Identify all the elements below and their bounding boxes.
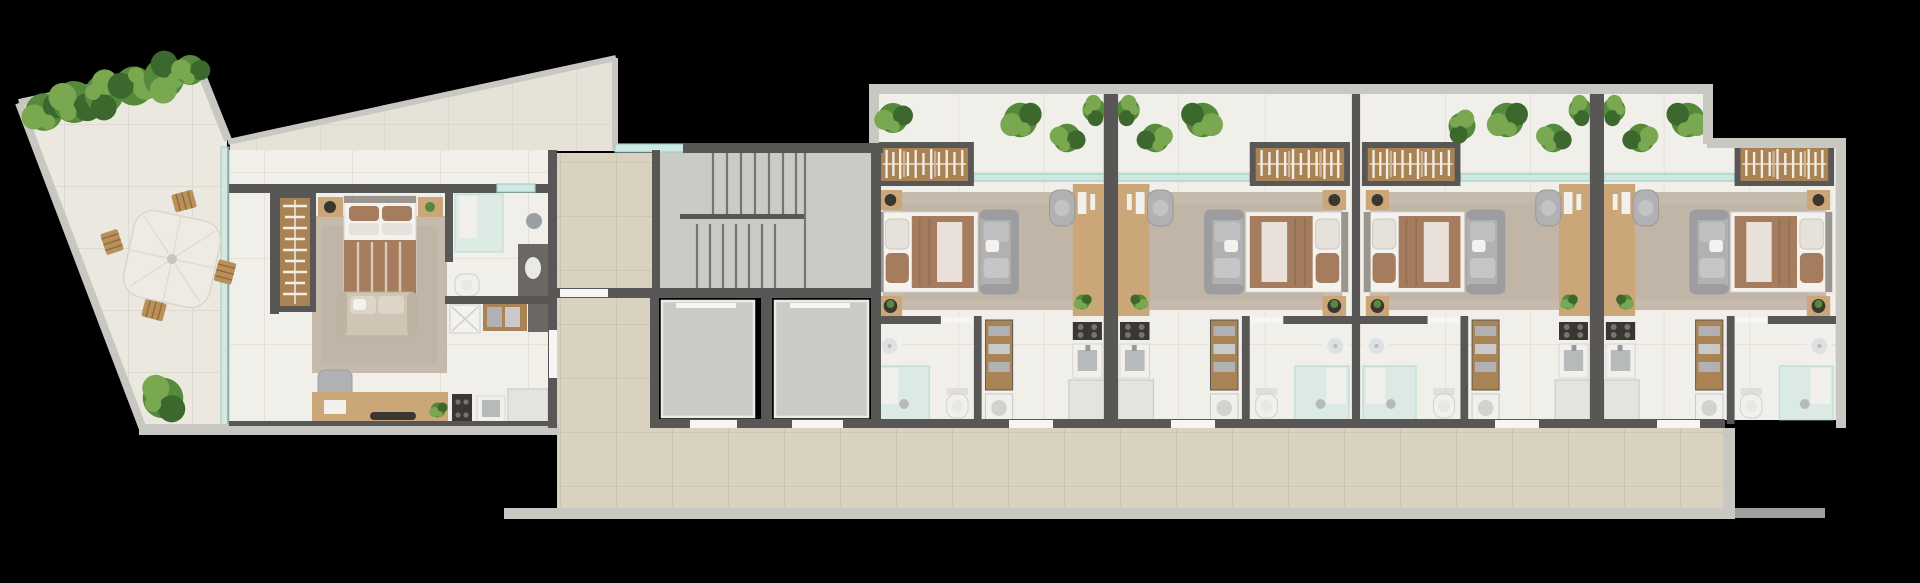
stair-north-wall (683, 143, 883, 153)
elevator-1-rail (676, 303, 736, 308)
elevator-west-wall (650, 288, 659, 428)
rain-shower-head (526, 213, 542, 229)
garden-unit-sink (477, 396, 505, 422)
bathroom-south-wall (445, 296, 549, 304)
notch-return-wall (1703, 84, 1713, 144)
garden-unit-wardrobe (274, 192, 316, 312)
elevator-2-door-sill (792, 420, 843, 428)
stair-slab (660, 150, 873, 290)
unit-1 (873, 92, 1110, 424)
garden-unit-laundry (450, 303, 548, 333)
stair-landing-edge (680, 214, 804, 219)
elevator-1-door-sill (690, 420, 737, 428)
corridor-east-wall (1723, 428, 1735, 519)
unit-2-entry-sill (1171, 420, 1215, 428)
garden-unit-glass-door (497, 184, 535, 192)
southeast-parapet (1733, 508, 1825, 518)
lobby-entry-glass (615, 144, 685, 152)
stair-west-wall (652, 150, 660, 290)
floor-plan-svg (0, 0, 1920, 583)
garden-toilet (455, 274, 479, 296)
garden-unit-entry-sill (549, 330, 557, 378)
parasol (120, 207, 224, 311)
elevator-1 (662, 301, 754, 417)
east-wall (1836, 138, 1846, 428)
garden-unit-bed (344, 196, 416, 294)
unit-3 (1360, 92, 1596, 424)
glazed-west-facade (221, 147, 229, 426)
garden-unit-desk (312, 392, 448, 426)
unit-3-entry-sill (1495, 420, 1539, 428)
divider-unit1-unit2 (1104, 94, 1118, 419)
unit-4-entry-sill (1657, 420, 1700, 428)
garden-unit-east-wall (548, 150, 557, 428)
laptop (324, 400, 346, 414)
core-east-wall (871, 143, 881, 428)
floor-plan-render (0, 0, 1920, 583)
chair-back (370, 412, 416, 420)
lobby-door-sill (560, 289, 608, 297)
north-wall (869, 84, 1707, 94)
garden-unit-cooktop (452, 394, 472, 424)
elevator-divider-wall (761, 296, 772, 426)
divider-unit2-unit3 (1352, 94, 1360, 419)
bedroom-east-wall (445, 184, 453, 262)
staircase (660, 150, 873, 290)
laundry-cabinet (528, 303, 548, 332)
elevator-2 (775, 301, 868, 417)
facade-notch (1713, 0, 1836, 138)
divider-unit3-unit4 (1590, 94, 1604, 419)
unit-1-entry-sill (1009, 420, 1053, 428)
garden-unit-sofa (337, 292, 417, 336)
unit-2 (1112, 92, 1352, 424)
nightstand-plant (418, 197, 443, 217)
corridor-south-wall (504, 508, 1735, 519)
nightstand-vase (318, 197, 343, 217)
elevator-2-rail (790, 303, 850, 308)
north-wall-notch (1707, 138, 1838, 148)
bedroom-west-wall (270, 184, 279, 314)
